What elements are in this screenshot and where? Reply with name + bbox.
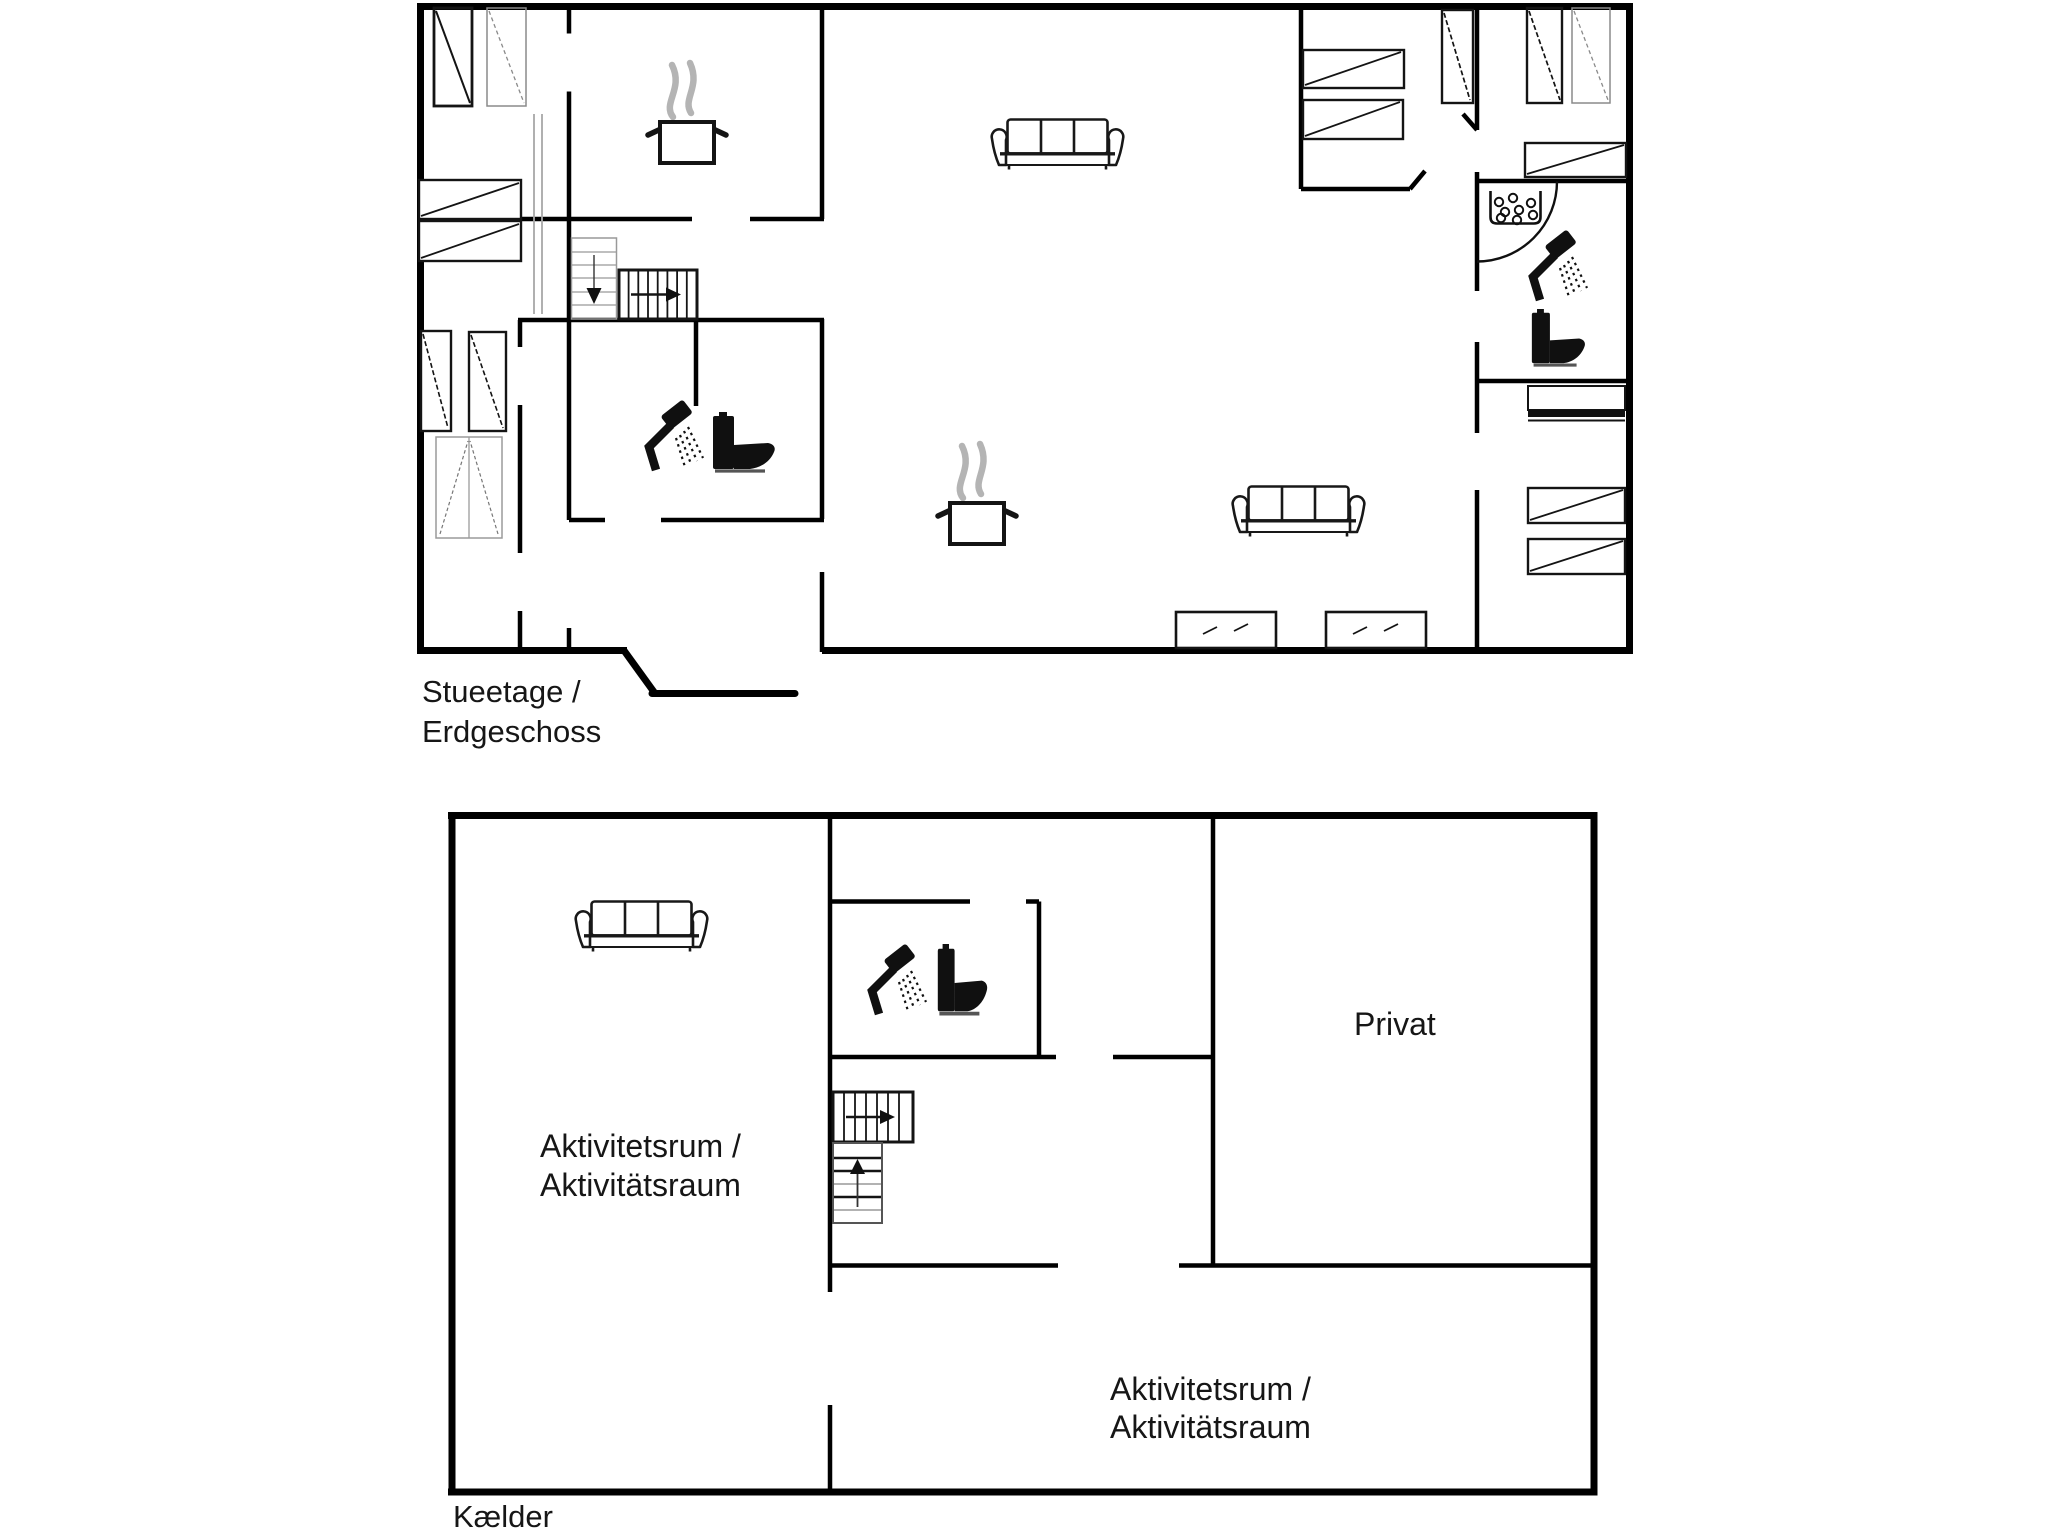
svg-text:Privat: Privat (1354, 1006, 1436, 1042)
svg-text:Aktivitätsraum: Aktivitätsraum (1110, 1409, 1311, 1445)
svg-text:Aktivitetsrum /: Aktivitetsrum / (1110, 1371, 1311, 1407)
svg-text:Erdgeschoss: Erdgeschoss (422, 714, 601, 749)
svg-text:Aktivitetsrum /: Aktivitetsrum / (540, 1128, 741, 1164)
svg-text:Kælder: Kælder (453, 1499, 553, 1534)
svg-text:Stueetage /: Stueetage / (422, 674, 581, 709)
svg-text:Aktivitätsraum: Aktivitätsraum (540, 1167, 741, 1203)
